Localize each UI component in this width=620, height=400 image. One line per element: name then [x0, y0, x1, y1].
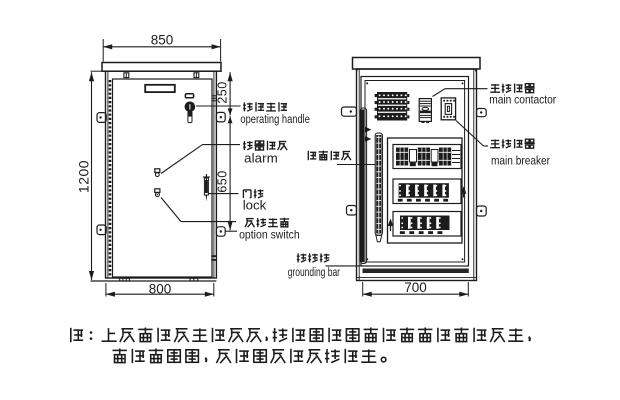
svg-text:main breaker: main breaker	[491, 154, 550, 168]
svg-text:850: 850	[151, 33, 174, 48]
svg-text:800: 800	[149, 282, 172, 297]
svg-text:lock: lock	[243, 198, 267, 213]
svg-text:700: 700	[404, 280, 427, 295]
svg-text:650: 650	[215, 170, 229, 192]
svg-text:1200: 1200	[75, 160, 91, 193]
svg-text:alarm: alarm	[244, 151, 278, 166]
svg-text:option switch: option switch	[239, 228, 300, 241]
svg-text:main contactor: main contactor	[489, 93, 556, 107]
svg-text:grounding bar: grounding bar	[288, 265, 340, 279]
svg-text:operating handle: operating handle	[240, 112, 310, 126]
svg-text:250: 250	[215, 81, 229, 103]
